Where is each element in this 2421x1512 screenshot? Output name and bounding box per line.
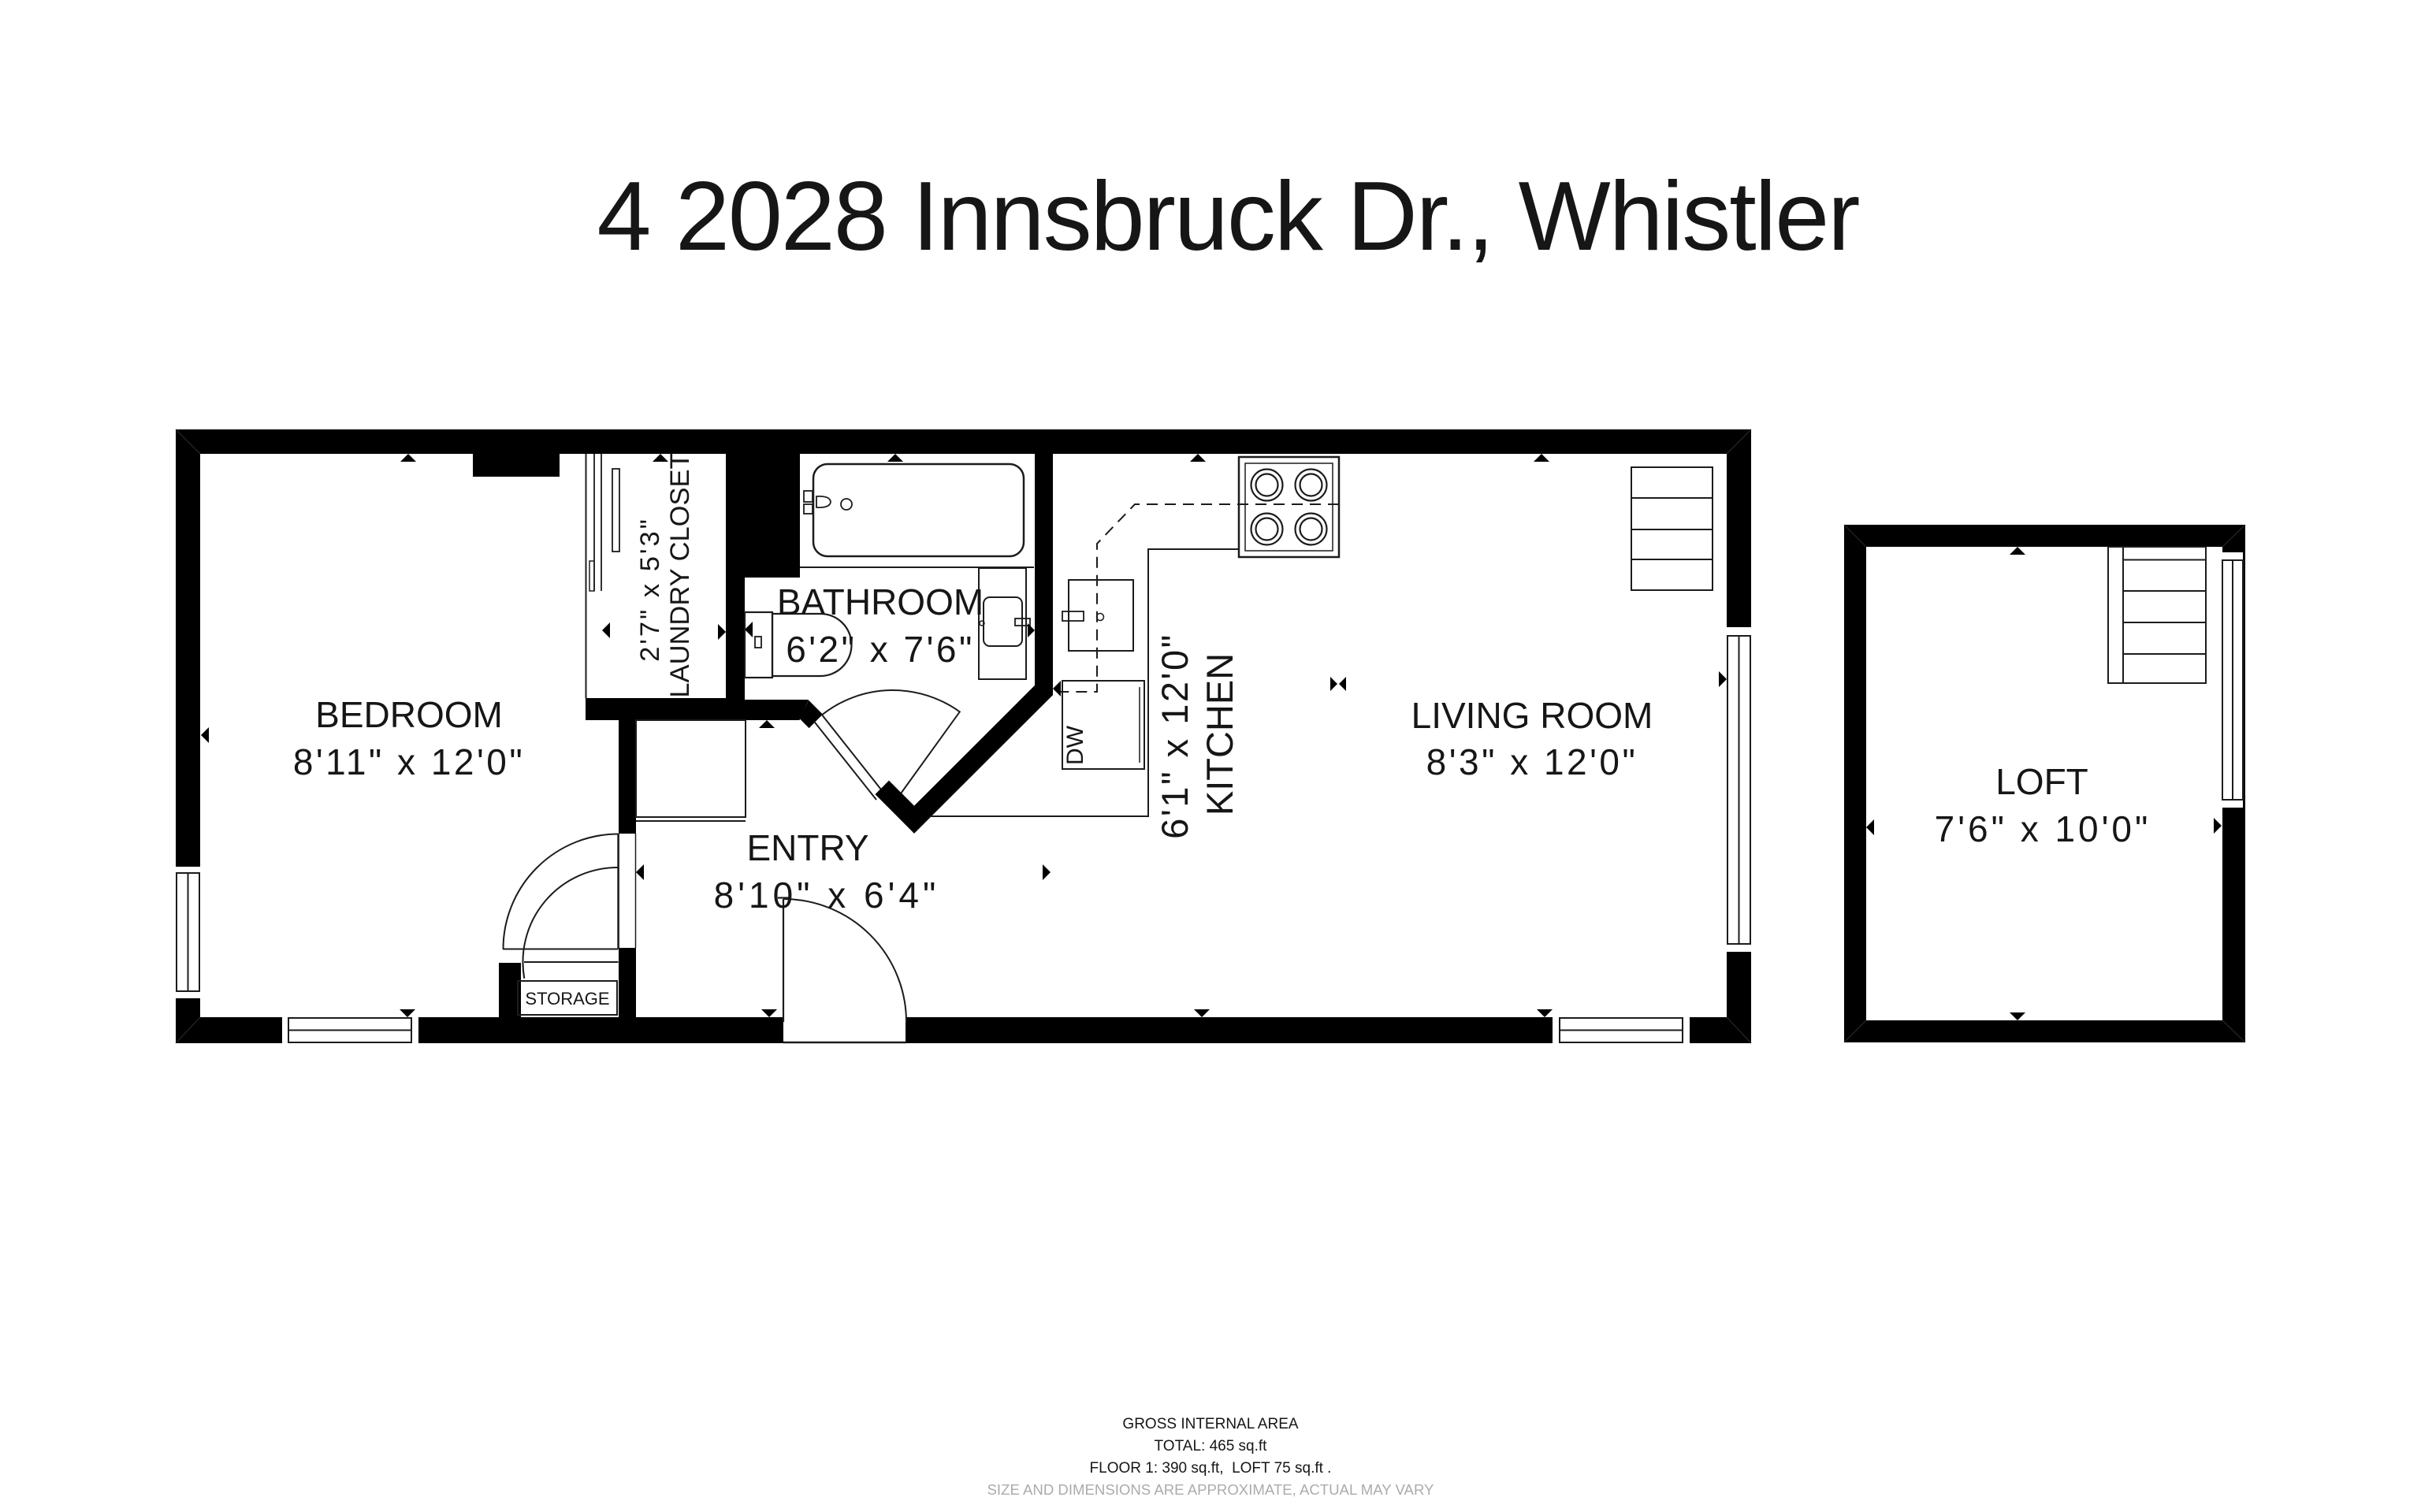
svg-text:7'6" x 10'0": 7'6" x 10'0"	[1935, 808, 2151, 849]
svg-text:DW: DW	[1062, 725, 1088, 765]
svg-text:TOTAL: 465 sq.ft: TOTAL: 465 sq.ft	[1155, 1438, 1268, 1454]
svg-text:KITCHEN: KITCHEN	[1199, 653, 1240, 815]
svg-text:8'10" x 6'4": 8'10" x 6'4"	[714, 875, 940, 916]
svg-text:8'11" x 12'0": 8'11" x 12'0"	[293, 741, 525, 782]
svg-text:SIZE AND DIMENSIONS ARE APPROX: SIZE AND DIMENSIONS ARE APPROXIMATE, ACT…	[987, 1481, 1434, 1498]
svg-text:BATHROOM: BATHROOM	[777, 581, 984, 622]
svg-text:ENTRY: ENTRY	[746, 827, 868, 868]
svg-text:BEDROOM: BEDROOM	[315, 694, 503, 735]
svg-text:STORAGE: STORAGE	[525, 989, 609, 1009]
svg-text:4 2028 Innsbruck Dr., Whistler: 4 2028 Innsbruck Dr., Whistler	[597, 162, 1860, 271]
svg-text:FLOOR 1: 390 sq.ft, LOFT 75 s: FLOOR 1: 390 sq.ft, LOFT 75 sq.ft .	[1090, 1460, 1332, 1477]
svg-text:GROSS INTERNAL AREA: GROSS INTERNAL AREA	[1122, 1416, 1298, 1432]
svg-text:LAUNDRY CLOSET: LAUNDRY CLOSET	[665, 452, 695, 697]
svg-text:2'7" x 5'3": 2'7" x 5'3"	[635, 517, 665, 662]
svg-text:LIVING ROOM: LIVING ROOM	[1411, 695, 1653, 736]
svg-text:LOFT: LOFT	[1995, 761, 2088, 802]
svg-text:8'3" x 12'0": 8'3" x 12'0"	[1426, 741, 1638, 782]
svg-text:6'1" x 12'0": 6'1" x 12'0"	[1154, 633, 1196, 839]
svg-text:6'2" x 7'6": 6'2" x 7'6"	[786, 629, 975, 670]
